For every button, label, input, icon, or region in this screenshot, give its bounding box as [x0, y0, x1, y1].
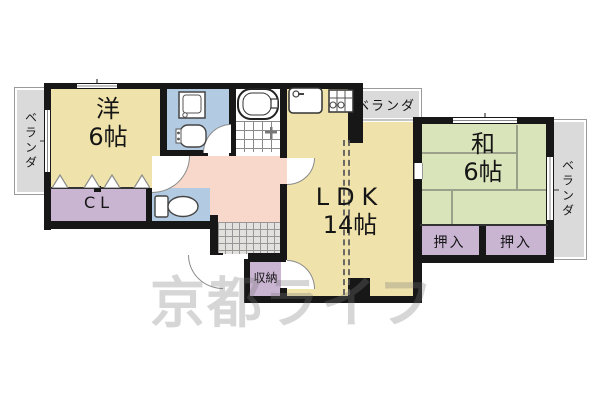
- room-size: 6帖: [443, 158, 523, 186]
- shower-faucet-icon: [263, 126, 279, 142]
- washbasin-icon: [175, 123, 207, 149]
- wall-tick: [96, 79, 98, 83]
- tatami-line: [422, 189, 546, 191]
- floor-plan: 洋 6帖 LDK 14帖 和 6帖 CL 押入 押入 収納 ベランダ ベランダ …: [0, 0, 600, 400]
- sliding-door: [414, 163, 423, 179]
- room-name: 洋: [58, 95, 158, 123]
- window: [363, 118, 413, 122]
- wall: [160, 83, 167, 157]
- washing-machine-icon: [178, 91, 206, 119]
- entrance-tiles: [218, 222, 280, 254]
- wall: [280, 184, 287, 260]
- room-name: LDK: [295, 183, 405, 211]
- oshiire-left-label: 押入: [420, 232, 479, 252]
- gas-stove-icon: [328, 89, 354, 113]
- room-size: 14帖: [295, 211, 405, 239]
- room-western-label: 洋 6帖: [58, 95, 158, 151]
- veranda-left-label: ベランダ: [16, 92, 46, 190]
- tatami-line: [451, 189, 453, 225]
- room-name: 和: [443, 130, 523, 158]
- room-japanese-label: 和 6帖: [443, 130, 523, 186]
- window: [77, 84, 117, 88]
- oshiire-right-label: 押入: [486, 232, 546, 252]
- room-ldk-label: LDK 14帖: [295, 183, 405, 239]
- wall: [479, 225, 486, 256]
- closet-line: [420, 224, 548, 226]
- kitchen-sink-icon: [288, 87, 323, 114]
- watermark-text: 京都ライフ: [150, 258, 435, 338]
- veranda-right-label: ベランダ: [553, 126, 583, 252]
- closet-cl-label: CL: [50, 193, 148, 212]
- veranda-top-label: ベランダ: [352, 95, 420, 114]
- wall: [44, 221, 218, 229]
- wall-tick: [484, 113, 486, 117]
- bathtub-icon: [237, 88, 279, 120]
- room-size: 6帖: [58, 123, 158, 151]
- closet-folding-door-icon: [52, 174, 150, 188]
- wall: [280, 83, 287, 158]
- window: [453, 118, 517, 123]
- toilet-icon: [154, 194, 200, 219]
